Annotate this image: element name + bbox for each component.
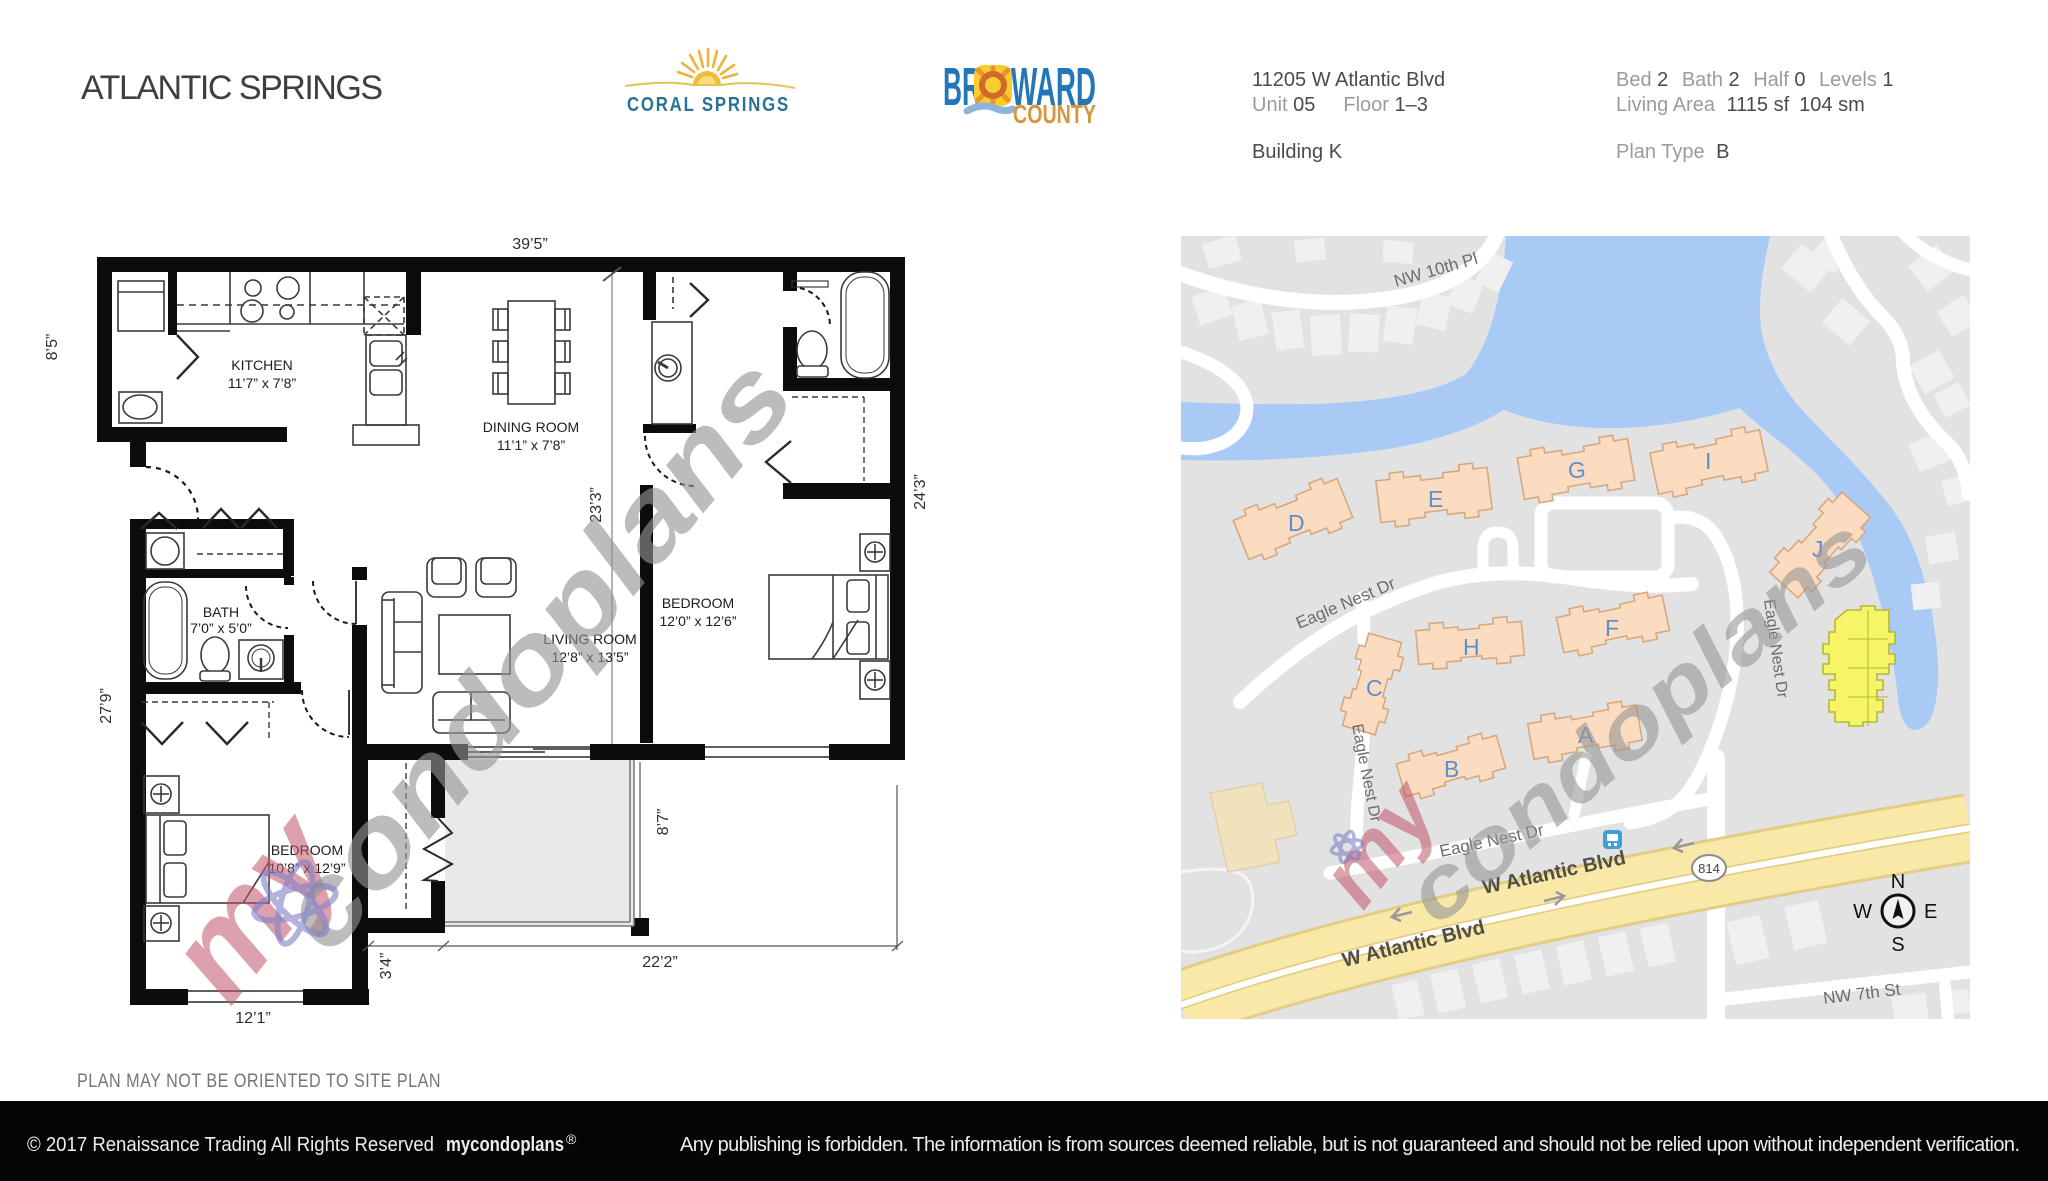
svg-text:© 2017 Renaissance Trading A: © 2017 Renaissance Trading All Rights Re… [27,1134,434,1156]
svg-text:DINING ROOM: DINING ROOM [483,419,579,435]
svg-text:BEDROOM: BEDROOM [662,595,734,611]
svg-text:11205 W Atlantic Blvd: 11205 W Atlantic Blvd [1252,69,1445,91]
svg-text:8’7”: 8’7” [655,809,672,836]
svg-text:B: B [1444,756,1459,782]
svg-text:814: 814 [1698,861,1720,876]
svg-text:S: S [1891,934,1904,956]
svg-text:Living Area 1115 sf104 sm: Living Area 1115 sf104 sm [1616,94,1865,116]
svg-text:3’4”: 3’4” [378,953,395,980]
svg-text:E: E [1924,901,1937,923]
svg-text:ATLANTIC SPRINGS: ATLANTIC SPRINGS [81,69,386,107]
svg-text:F: F [1605,615,1619,641]
svg-text:11’7” x 7’8”: 11’7” x 7’8” [228,375,297,391]
svg-text:27’9”: 27’9” [98,688,115,724]
svg-text:®: ® [566,1131,577,1147]
svg-text:I: I [1705,448,1711,474]
svg-text:PLAN MAY NOT BE ORIENTED TO SI: PLAN MAY NOT BE ORIENTED TO SITE PLAN [77,1070,441,1092]
svg-text:Bed 2 Bath 2 Half 0 Levels: Bed 2 Bath 2 Half 0 Levels 1 [1616,69,1894,91]
svg-text:KITCHEN: KITCHEN [231,357,292,373]
svg-text:8’5”: 8’5” [44,334,61,361]
svg-text:Any publishing is forbidden.: Any publishing is forbidden. The informa… [680,1134,2020,1156]
svg-text:11’1” x 7’8”: 11’1” x 7’8” [497,437,566,453]
svg-text:BATH: BATH [203,604,239,620]
svg-text:CORAL SPRINGS: CORAL SPRINGS [627,94,790,116]
svg-text:N: N [1891,871,1905,893]
svg-text:W: W [1853,901,1872,923]
svg-text:C: C [1366,675,1383,701]
svg-text:G: G [1568,457,1586,483]
svg-text:COUNTY: COUNTY [1013,99,1096,129]
svg-text:22’2”: 22’2” [642,954,678,971]
svg-text:mycondoplans: mycondoplans [446,1134,564,1156]
svg-text:D: D [1288,510,1305,536]
svg-text:39’5”: 39’5” [512,236,548,253]
svg-text:7’0” x 5’0”: 7’0” x 5’0” [190,620,252,636]
svg-text:E: E [1428,486,1443,512]
svg-text:Building K: Building K [1252,141,1343,163]
svg-text:24’3”: 24’3” [912,474,929,510]
svg-text:H: H [1463,634,1480,660]
svg-text:12’0” x 12’6”: 12’0” x 12’6” [659,613,736,629]
